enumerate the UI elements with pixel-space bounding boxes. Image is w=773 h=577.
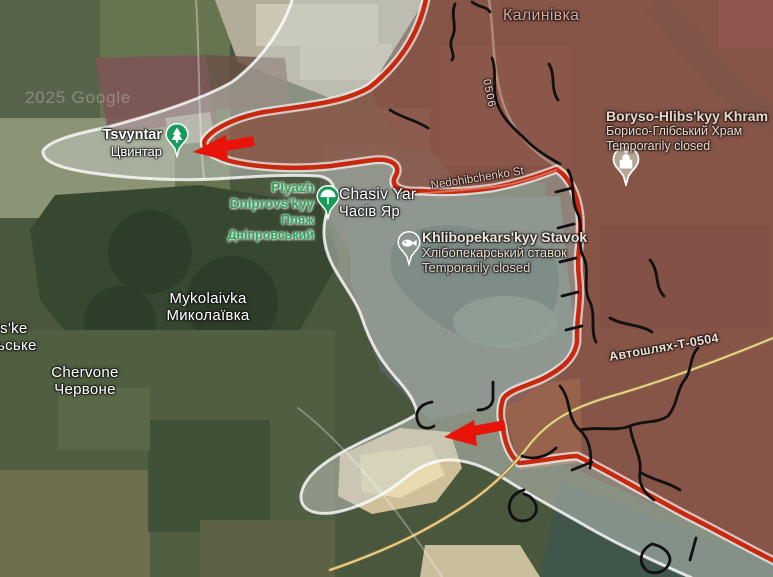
poi-name-uk: Хлібопекарський ставок [422, 245, 587, 260]
poi-name-uk-line2: Дніпровський [226, 228, 314, 243]
town-name: Mykolaivka [152, 290, 264, 307]
town-name-uk: Миколаївка [152, 307, 264, 324]
poi-name-line1: Plyazh [226, 180, 314, 196]
poi-name: Tsvyntar [88, 127, 162, 144]
town-name: 's'ke [0, 320, 37, 337]
satellite-map-canvas [0, 0, 773, 577]
town-name: Chervone [36, 364, 134, 381]
fishing-pond-pin-icon[interactable] [396, 230, 422, 271]
town-label-partial-ske: 's'ke ьське [0, 320, 37, 355]
poi-label-tsvyntar[interactable]: Tsvyntar Цвинтар [88, 127, 162, 159]
town-name-uk: Червоне [36, 381, 134, 398]
town-name-uk: ьське [0, 337, 37, 354]
town-name: Калинівка [503, 7, 579, 24]
town-label-chasiv-yar: Chasiv Yar Часів Яр [339, 186, 416, 221]
town-name-uk: Часів Яр [339, 204, 416, 221]
google-watermark: 2025 Google [25, 88, 131, 108]
town-label-kalynivka: Калинівка [503, 7, 579, 26]
cemetery-pin-icon[interactable] [164, 122, 190, 163]
poi-status: Temporarily closed [606, 139, 768, 154]
poi-name: Khlibopekars'kyy Stavok [422, 229, 587, 245]
poi-label-plyazh[interactable]: Plyazh Dniprovs'kyy Пляж Дніпровський [226, 180, 314, 242]
poi-name-uk: Борисо-Глібський Храм [606, 124, 768, 139]
watermark-text: 2025 Google [25, 88, 131, 107]
poi-status: Temporarily closed [422, 260, 587, 275]
beach-pin-icon[interactable] [315, 184, 341, 225]
town-label-chervone: Chervone Червоне [36, 364, 134, 399]
poi-name-uk: Цвинтар [88, 144, 162, 159]
town-label-mykolaivka: Mykolaivka Миколаївка [152, 290, 264, 325]
poi-label-stavok[interactable]: Khlibopekars'kyy Stavok Хлібопекарський … [422, 229, 587, 275]
map-viewport: Калинівка Boryso-Hlibs'kyy Khram Борисо-… [0, 0, 773, 577]
town-name: Chasiv Yar [339, 186, 416, 204]
poi-name-line2: Dniprovs'kyy [226, 196, 314, 212]
poi-label-khram[interactable]: Boryso-Hlibs'kyy Khram Борисо-Глібський … [606, 108, 768, 153]
poi-name: Boryso-Hlibs'kyy Khram [606, 108, 768, 124]
poi-name-uk-line1: Пляж [226, 213, 314, 228]
